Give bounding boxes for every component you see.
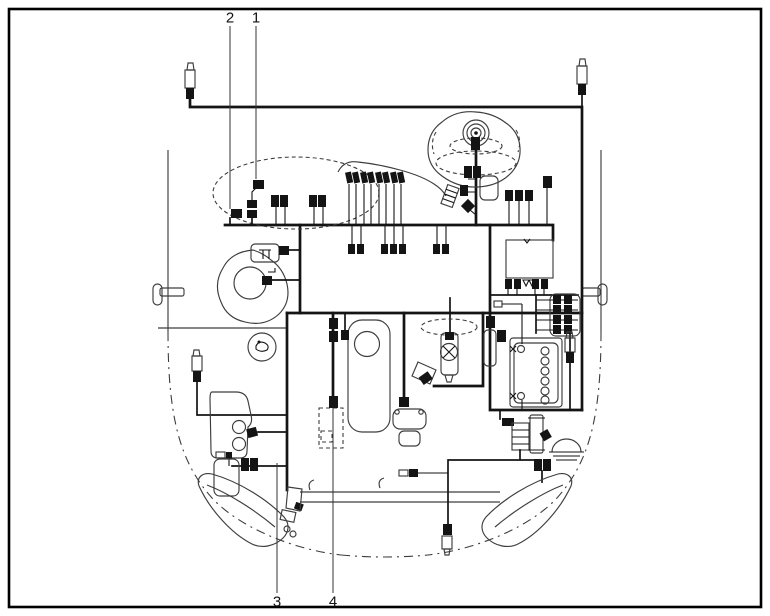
horn [540,429,584,460]
front-bumper-beam [286,478,500,511]
fuse-relay-box [505,239,553,295]
left-inline-connector-icon [192,350,287,415]
front-left-harness [216,452,287,471]
connector-ladder [536,294,580,336]
right-side-marker-icon [582,284,607,305]
ignition-coil-cluster [441,137,498,215]
harness-branch-connectors [348,225,449,254]
callout-label-4: 4 [329,594,337,611]
left-headlight [198,459,288,546]
intake-manifold [213,157,379,229]
right-headlight [482,474,572,547]
bottom-inline-connector-icon [442,524,452,555]
harness-left-end-connectors [230,180,326,225]
air-cleaner-right-connectors [505,176,552,225]
distributor [412,319,477,385]
wiring-diagram-figure: 2 1 3 4 [0,0,770,616]
fuel-injector-connectors [338,162,446,225]
engine-mount-dashed [319,408,343,448]
callout-leader-lines [230,26,333,593]
valve-cover [348,320,390,432]
washer-bottle [210,392,287,458]
thermostat-housing [393,397,426,446]
blower-motor [217,244,300,323]
coolant-reservoir-cap-icon [248,333,276,361]
top-left-inline-connector-icon [185,63,195,99]
callout-label-2: 2 [226,10,234,27]
callout-label-3: 3 [273,594,281,611]
top-right-inline-connector-icon [577,59,587,107]
callout-label-1: 1 [252,10,260,27]
front-right-harness [399,411,584,555]
battery [494,301,562,410]
wiring-diagram-svg [0,0,770,616]
figure-frame [9,9,761,607]
